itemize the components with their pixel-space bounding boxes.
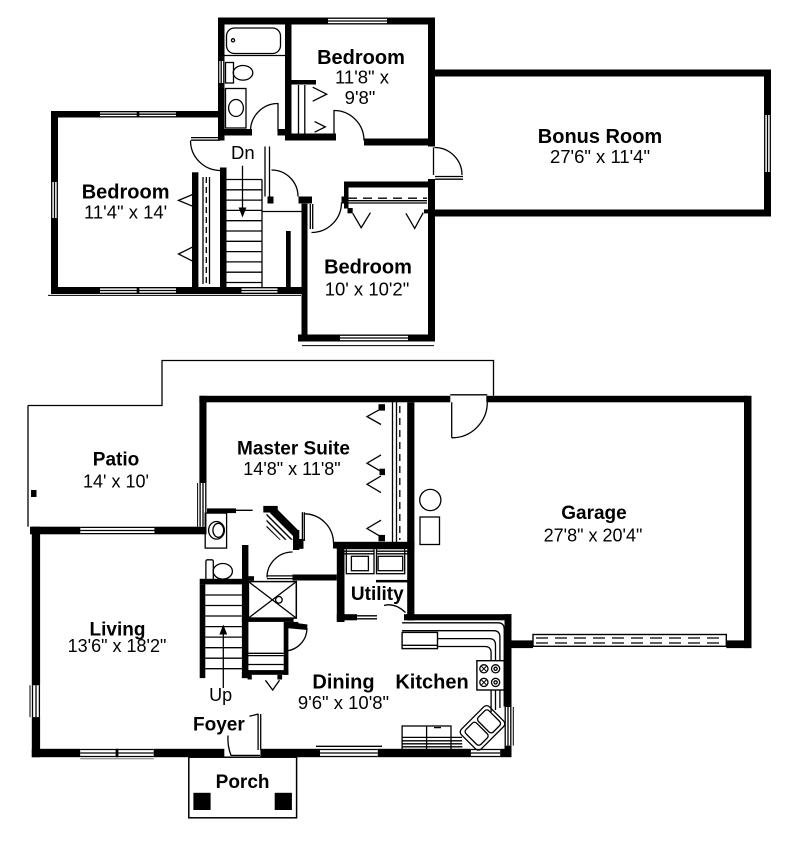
svg-text:Up: Up [209,685,232,705]
svg-text:Dn: Dn [231,142,255,163]
svg-text:14'8" x 11'8": 14'8" x 11'8" [243,459,340,479]
svg-text:Kitchen: Kitchen [395,672,468,694]
svg-text:Bedroom: Bedroom [82,182,170,204]
svg-text:Porch: Porch [216,772,270,793]
svg-text:Patio: Patio [93,450,139,471]
svg-text:27'8" x 20'4": 27'8" x 20'4" [544,526,643,546]
svg-text:Bedroom: Bedroom [324,257,412,279]
svg-text:14' x 10': 14' x 10' [83,472,149,492]
svg-text:Garage: Garage [561,503,626,524]
svg-text:Foyer: Foyer [193,715,245,736]
svg-text:11'4" x 14': 11'4" x 14' [84,202,167,223]
svg-text:9'8": 9'8" [345,87,376,108]
svg-text:9'6" x 10'8": 9'6" x 10'8" [298,692,389,713]
svg-text:11'8" x: 11'8" x [335,67,390,88]
svg-text:Bonus Room: Bonus Room [538,126,662,148]
svg-text:27'6" x 11'4": 27'6" x 11'4" [550,146,650,167]
svg-text:10' x 10'2": 10' x 10'2" [325,279,410,300]
svg-text:Utility: Utility [351,584,404,605]
svg-text:Master Suite: Master Suite [237,439,350,460]
svg-text:Dining: Dining [312,672,374,694]
svg-text:13'6" x 18'2": 13'6" x 18'2" [68,636,167,656]
